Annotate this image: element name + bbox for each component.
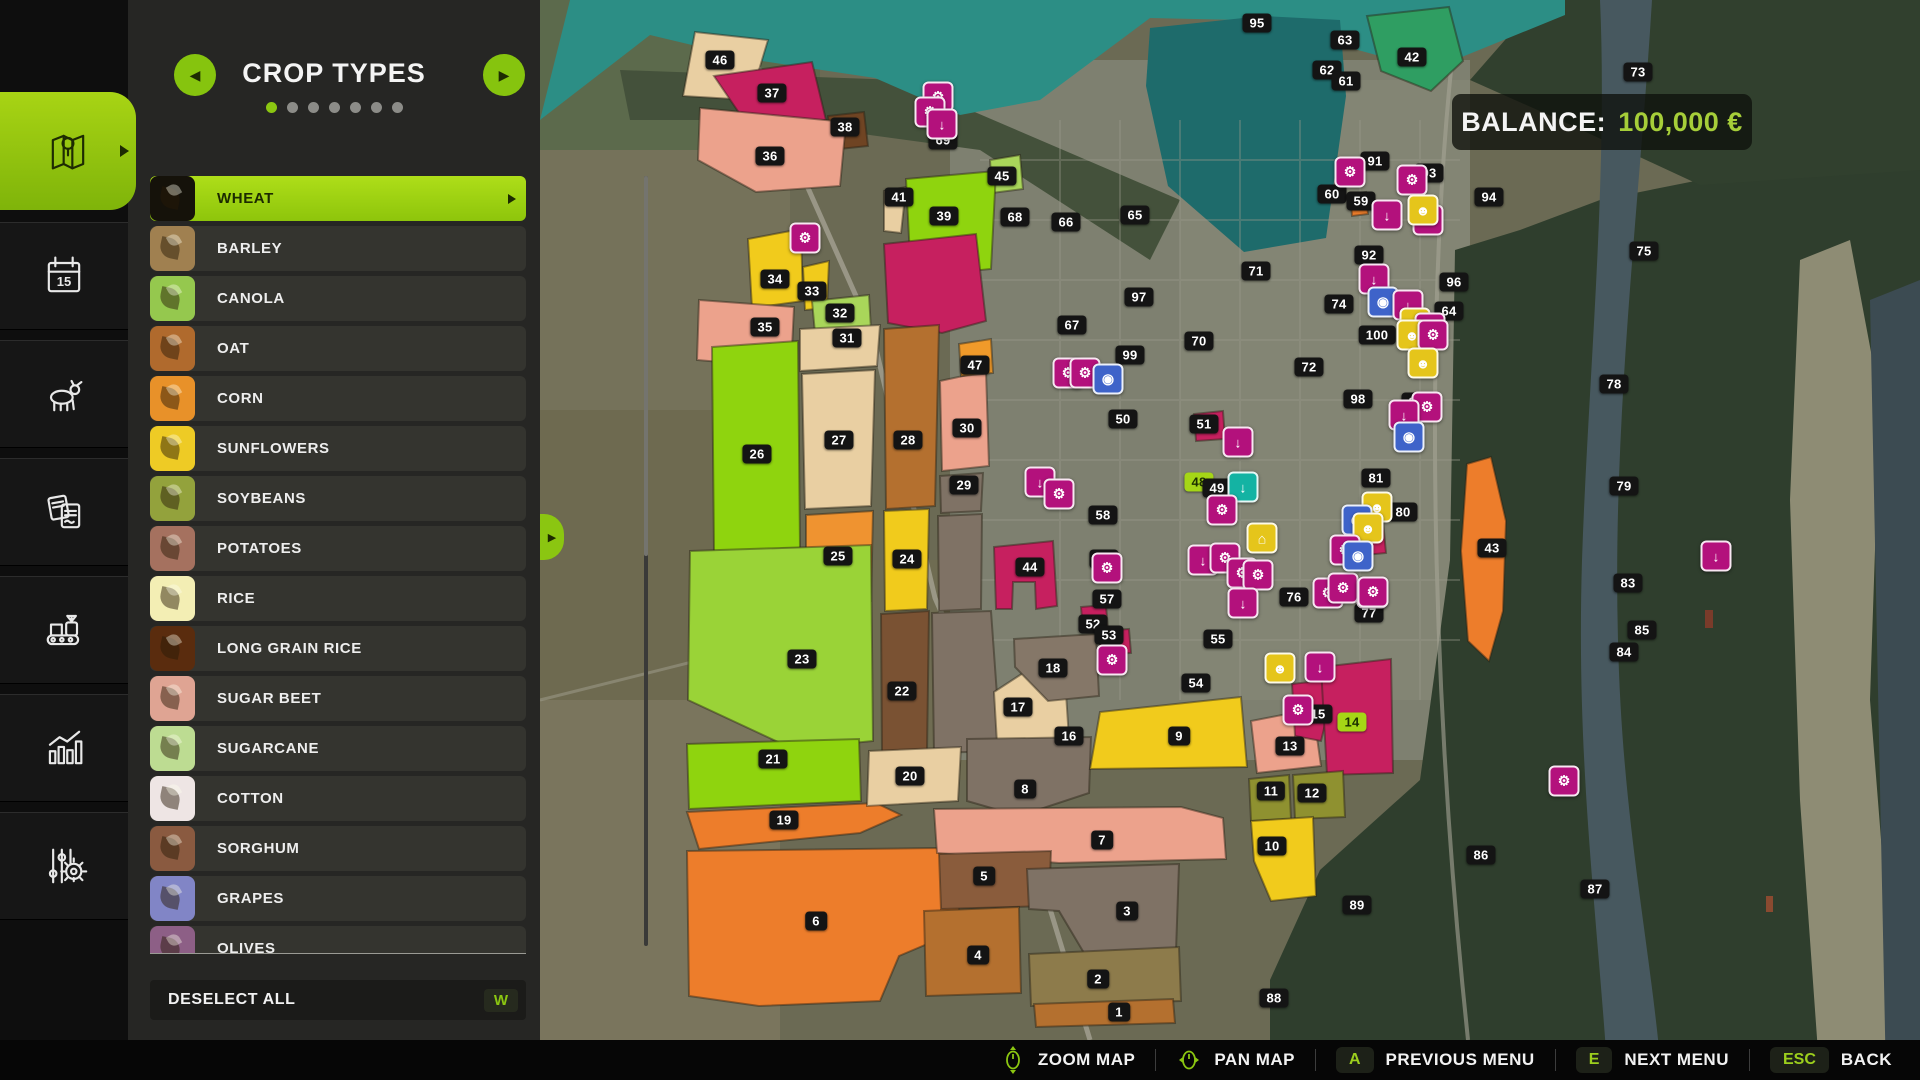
- production-icon: [38, 604, 90, 656]
- crop-label: LONG GRAIN RICE: [217, 640, 362, 657]
- field-label-73[interactable]: 73: [1623, 63, 1652, 82]
- production-icon[interactable]: ⚙: [790, 223, 821, 254]
- crop-row-grapes[interactable]: GRAPES: [150, 876, 526, 921]
- field-label-94[interactable]: 94: [1474, 188, 1503, 207]
- field-label-33[interactable]: 33: [797, 282, 826, 301]
- separator: [1315, 1049, 1316, 1071]
- field-label-80[interactable]: 80: [1388, 503, 1417, 522]
- bottombar-label: PREVIOUS MENU: [1386, 1050, 1535, 1070]
- crop-row-barley[interactable]: BARLEY: [150, 226, 526, 271]
- field-label-79[interactable]: 79: [1609, 477, 1638, 496]
- animals-icon: [38, 368, 90, 420]
- field-label-41[interactable]: 41: [884, 188, 913, 207]
- crop-row-soybeans[interactable]: SOYBEANS: [150, 476, 526, 521]
- field-label-87[interactable]: 87: [1580, 880, 1609, 899]
- deselect-all-label: DESELECT ALL: [168, 991, 296, 1009]
- field-label-20[interactable]: 20: [895, 767, 924, 786]
- production-icon[interactable]: ⚙: [1335, 157, 1366, 188]
- field-label-25[interactable]: 25: [823, 547, 852, 566]
- house-icon[interactable]: ⌂: [1247, 523, 1278, 554]
- production-icon[interactable]: ⚙: [1092, 553, 1123, 584]
- field-label-43[interactable]: 43: [1477, 539, 1506, 558]
- bottombar-label: NEXT MENU: [1624, 1050, 1729, 1070]
- production-icon[interactable]: ⚙: [1097, 645, 1128, 676]
- scrollbar-thumb[interactable]: [644, 176, 648, 556]
- field-label-92[interactable]: 92: [1354, 246, 1383, 265]
- bottombar-item-back[interactable]: ESCBACK: [1770, 1047, 1892, 1073]
- sidebar-item-statistics[interactable]: [0, 694, 128, 802]
- production-icon[interactable]: ⚙: [1328, 573, 1359, 604]
- mouse-zoom-icon: [1000, 1045, 1026, 1075]
- crop-types-panel: ◀ CROP TYPES ▶ WHEATBARLEYCANOLAOATCORNS…: [128, 0, 540, 1040]
- field-label-11[interactable]: 11: [1257, 782, 1285, 801]
- field-label-66[interactable]: 66: [1051, 213, 1080, 232]
- field-label-95[interactable]: 95: [1242, 14, 1271, 33]
- field-label-16[interactable]: 16: [1054, 727, 1083, 746]
- crop-label: WHEAT: [217, 190, 274, 207]
- sidebar-item-animals[interactable]: [0, 340, 128, 448]
- sidebar-item-settings[interactable]: [0, 812, 128, 920]
- crop-label: COTTON: [217, 790, 284, 807]
- production-icon[interactable]: ⚙: [1418, 320, 1449, 351]
- field-polygon-28[interactable]: [884, 325, 939, 509]
- sidebar-item-map[interactable]: [0, 92, 136, 210]
- crop-list: WHEATBARLEYCANOLAOATCORNSUNFLOWERSSOYBEA…: [150, 176, 526, 954]
- sidebar: 15: [0, 0, 128, 1040]
- field-label-45[interactable]: 45: [987, 167, 1016, 186]
- bottombar-item-pan-map[interactable]: PAN MAP: [1176, 1045, 1295, 1075]
- field-label-13[interactable]: 13: [1275, 737, 1304, 756]
- field-label-29[interactable]: 29: [949, 476, 978, 495]
- balance-display: BALANCE: 100,000 €: [1452, 94, 1752, 150]
- crop-row-potatoes[interactable]: POTATOES: [150, 526, 526, 571]
- field-label-75[interactable]: 75: [1629, 242, 1658, 261]
- deselect-all-button[interactable]: DESELECT ALL W: [150, 980, 526, 1020]
- page-dot-2[interactable]: [287, 102, 298, 113]
- field-label-100[interactable]: 100: [1359, 326, 1396, 345]
- field-label-58[interactable]: 58: [1088, 506, 1117, 525]
- field-polygon-x[interactable]: [938, 514, 982, 611]
- crop-icon: [150, 826, 195, 871]
- field-label-76[interactable]: 76: [1279, 588, 1308, 607]
- crop-icon: [150, 426, 195, 471]
- field-label-74[interactable]: 74: [1324, 295, 1353, 314]
- sidebar-item-production[interactable]: [0, 576, 128, 684]
- field-label-96[interactable]: 96: [1439, 273, 1468, 292]
- production-icon[interactable]: ⚙: [1207, 495, 1238, 526]
- production-icon[interactable]: ⚙: [1243, 560, 1274, 591]
- field-label-39[interactable]: 39: [929, 207, 958, 226]
- crop-label: OAT: [217, 340, 249, 357]
- crop-label: SUGARCANE: [217, 740, 319, 757]
- crop-label: POTATOES: [217, 540, 302, 557]
- field-label-37[interactable]: 37: [757, 84, 786, 103]
- field-label-70[interactable]: 70: [1184, 332, 1213, 351]
- crop-icon: [150, 626, 195, 671]
- crop-row-olives[interactable]: OLIVES: [150, 926, 526, 954]
- crop-row-canola[interactable]: CANOLA: [150, 276, 526, 321]
- field-label-7[interactable]: 7: [1091, 831, 1113, 850]
- separator: [1155, 1049, 1156, 1071]
- crop-row-cotton[interactable]: COTTON: [150, 776, 526, 821]
- field-label-8[interactable]: 8: [1014, 780, 1036, 799]
- crop-icon: [150, 376, 195, 421]
- fuel-station-icon[interactable]: ◉: [1343, 541, 1374, 572]
- field-label-68[interactable]: 68: [1000, 208, 1029, 227]
- field-polygon-40[interactable]: [884, 234, 986, 333]
- crop-icon: [150, 176, 195, 221]
- crop-icon: [150, 776, 195, 821]
- field-label-53[interactable]: 53: [1094, 626, 1123, 645]
- crop-label: SUNFLOWERS: [217, 440, 330, 457]
- panel-title: CROP TYPES: [128, 58, 540, 89]
- crop-icon: [150, 326, 195, 371]
- crop-label: GRAPES: [217, 890, 284, 907]
- page-dot-6[interactable]: [371, 102, 382, 113]
- field-label-9[interactable]: 9: [1168, 727, 1190, 746]
- npc-icon[interactable]: ☻: [1265, 653, 1296, 684]
- sell-point-icon[interactable]: ↓: [927, 109, 958, 140]
- field-label-55[interactable]: 55: [1203, 630, 1232, 649]
- crop-label: SOYBEANS: [217, 490, 306, 507]
- field-label-88[interactable]: 88: [1259, 989, 1288, 1008]
- crop-label: BARLEY: [217, 240, 282, 257]
- crop-row-sorghum[interactable]: SORGHUM: [150, 826, 526, 871]
- crop-row-sunflowers[interactable]: SUNFLOWERS: [150, 426, 526, 471]
- page-dots: [128, 102, 540, 113]
- field-label-78[interactable]: 78: [1599, 375, 1628, 394]
- field-label-22[interactable]: 22: [887, 682, 916, 701]
- field-label-72[interactable]: 72: [1294, 358, 1323, 377]
- production-icon[interactable]: ⚙: [1549, 766, 1580, 797]
- field-label-2[interactable]: 2: [1087, 970, 1109, 989]
- sell-point-icon[interactable]: ↓: [1372, 200, 1403, 231]
- field-label-89[interactable]: 89: [1342, 896, 1371, 915]
- crop-row-sugar-beet[interactable]: SUGAR BEET: [150, 676, 526, 721]
- contracts-icon: [38, 486, 90, 538]
- field-label-30[interactable]: 30: [952, 419, 981, 438]
- crop-row-long-grain-rice[interactable]: LONG GRAIN RICE: [150, 626, 526, 671]
- sell-point-icon[interactable]: ↓: [1305, 652, 1336, 683]
- crop-icon: [150, 876, 195, 921]
- field-label-98[interactable]: 98: [1343, 390, 1372, 409]
- fuel-station-icon[interactable]: ◉: [1093, 364, 1124, 395]
- field-label-46[interactable]: 46: [705, 51, 734, 70]
- production-icon[interactable]: ⚙: [1358, 577, 1389, 608]
- field-label-23[interactable]: 23: [787, 650, 816, 669]
- bottombar-label: PAN MAP: [1214, 1050, 1295, 1070]
- crop-icon: [150, 526, 195, 571]
- crop-row-sugarcane[interactable]: SUGARCANE: [150, 726, 526, 771]
- key-badge-esc: ESC: [1770, 1047, 1829, 1073]
- bottombar-item-next-menu[interactable]: ENEXT MENU: [1576, 1047, 1729, 1073]
- crop-label: SORGHUM: [217, 840, 300, 857]
- field-label-31[interactable]: 31: [832, 329, 861, 348]
- sell-point-icon[interactable]: ↓: [1228, 588, 1259, 619]
- field-label-71[interactable]: 71: [1241, 262, 1270, 281]
- field-label-1[interactable]: 1: [1108, 1003, 1130, 1022]
- sidebar-item-contracts[interactable]: [0, 458, 128, 566]
- field-label-35[interactable]: 35: [750, 318, 779, 337]
- crop-icon: [150, 676, 195, 721]
- field-label-47[interactable]: 47: [960, 356, 989, 375]
- map-icon: [42, 125, 94, 177]
- field-label-4[interactable]: 4: [967, 946, 989, 965]
- field-polygon-x[interactable]: [932, 611, 1001, 753]
- field-label-38[interactable]: 38: [830, 118, 859, 137]
- field-label-36[interactable]: 36: [755, 147, 784, 166]
- field-label-19[interactable]: 19: [769, 811, 798, 830]
- crop-label: SUGAR BEET: [217, 690, 321, 707]
- field-label-65[interactable]: 65: [1120, 206, 1149, 225]
- field-label-50[interactable]: 50: [1108, 410, 1137, 429]
- field-label-81[interactable]: 81: [1361, 469, 1390, 488]
- field-label-6[interactable]: 6: [805, 912, 827, 931]
- bottombar-label: BACK: [1841, 1050, 1892, 1070]
- field-label-42[interactable]: 42: [1397, 48, 1426, 67]
- crop-label: CORN: [217, 390, 264, 407]
- field-label-17[interactable]: 17: [1003, 698, 1032, 717]
- barge: [1766, 896, 1773, 912]
- page-dot-4[interactable]: [329, 102, 340, 113]
- field-label-99[interactable]: 99: [1115, 346, 1144, 365]
- field-label-18[interactable]: 18: [1038, 659, 1067, 678]
- crop-icon: [150, 476, 195, 521]
- balance-label: BALANCE:: [1461, 107, 1606, 138]
- field-polygon-1[interactable]: [1034, 999, 1175, 1027]
- fuel-station-icon[interactable]: ◉: [1394, 422, 1425, 453]
- field-label-3[interactable]: 3: [1116, 902, 1138, 921]
- crop-label: RICE: [217, 590, 255, 607]
- field-label-28[interactable]: 28: [893, 431, 922, 450]
- page-dot-3[interactable]: [308, 102, 319, 113]
- field-label-24[interactable]: 24: [892, 550, 921, 569]
- svg-text:15: 15: [57, 274, 71, 289]
- key-badge-e: E: [1576, 1047, 1613, 1073]
- production-icon[interactable]: ⚙: [1044, 479, 1075, 510]
- field-label-54[interactable]: 54: [1181, 674, 1210, 693]
- field-label-63[interactable]: 63: [1330, 31, 1359, 50]
- calendar-icon: 15: [38, 250, 90, 302]
- bottom-help-bar: ZOOM MAPPAN MAPAPREVIOUS MENUENEXT MENUE…: [0, 1040, 1920, 1080]
- deselect-all-key-badge: W: [484, 989, 518, 1012]
- field-label-12[interactable]: 12: [1297, 784, 1326, 803]
- crop-row-corn[interactable]: CORN: [150, 376, 526, 421]
- sell-point-icon[interactable]: ↓: [1223, 427, 1254, 458]
- balance-value: 100,000 €: [1618, 107, 1743, 138]
- field-label-27[interactable]: 27: [824, 431, 853, 450]
- npc-icon[interactable]: ☻: [1408, 348, 1439, 379]
- field-label-34[interactable]: 34: [760, 270, 789, 289]
- field-label-85[interactable]: 85: [1627, 621, 1656, 640]
- separator: [1555, 1049, 1556, 1071]
- crop-list-scrollbar[interactable]: [644, 176, 648, 946]
- production-icon[interactable]: ⚙: [1397, 165, 1428, 196]
- field-label-61[interactable]: 61: [1331, 72, 1360, 91]
- crop-row-rice[interactable]: RICE: [150, 576, 526, 621]
- bottombar-item-zoom-map[interactable]: ZOOM MAP: [1000, 1045, 1136, 1075]
- crop-icon: [150, 226, 195, 271]
- field-label-57[interactable]: 57: [1092, 590, 1121, 609]
- statistics-icon: [38, 722, 90, 774]
- mouse-pan-icon: [1176, 1045, 1202, 1075]
- page-dot-7[interactable]: [392, 102, 403, 113]
- bottombar-label: ZOOM MAP: [1038, 1050, 1136, 1070]
- page-dot-5[interactable]: [350, 102, 361, 113]
- field-label-32[interactable]: 32: [825, 304, 854, 323]
- crop-icon: [150, 726, 195, 771]
- crop-label: OLIVES: [217, 940, 276, 954]
- field-label-44[interactable]: 44: [1015, 558, 1044, 577]
- settings-icon: [38, 840, 90, 892]
- next-page-button[interactable]: ▶: [483, 54, 525, 96]
- sell-point-icon[interactable]: ↓: [1701, 541, 1732, 572]
- field-label-10[interactable]: 10: [1257, 837, 1286, 856]
- field-label-86[interactable]: 86: [1466, 846, 1495, 865]
- npc-icon[interactable]: ☻: [1408, 195, 1439, 226]
- crop-row-oat[interactable]: OAT: [150, 326, 526, 371]
- panel-header: ◀ CROP TYPES ▶: [128, 0, 540, 140]
- field-label-21[interactable]: 21: [758, 750, 787, 769]
- crop-icon: [150, 276, 195, 321]
- field-label-51[interactable]: 51: [1189, 415, 1218, 434]
- key-badge-a: A: [1336, 1047, 1374, 1073]
- separator: [1749, 1049, 1750, 1071]
- field-label-26[interactable]: 26: [742, 445, 771, 464]
- field-label-84[interactable]: 84: [1609, 643, 1638, 662]
- crop-icon: [150, 926, 195, 954]
- crop-label: CANOLA: [217, 290, 285, 307]
- field-label-5[interactable]: 5: [973, 867, 995, 886]
- crop-icon: [150, 576, 195, 621]
- field-label-83[interactable]: 83: [1613, 574, 1642, 593]
- field-label-67[interactable]: 67: [1057, 316, 1086, 335]
- bottombar-item-previous-menu[interactable]: APREVIOUS MENU: [1336, 1047, 1535, 1073]
- field-label-97[interactable]: 97: [1124, 288, 1153, 307]
- production-icon[interactable]: ⚙: [1283, 695, 1314, 726]
- barge: [1705, 610, 1713, 628]
- sidebar-item-calendar[interactable]: 15: [0, 222, 128, 330]
- field-label-14[interactable]: 14: [1337, 713, 1366, 732]
- crop-row-wheat[interactable]: WHEAT: [150, 176, 526, 221]
- page-dot-1[interactable]: [266, 102, 277, 113]
